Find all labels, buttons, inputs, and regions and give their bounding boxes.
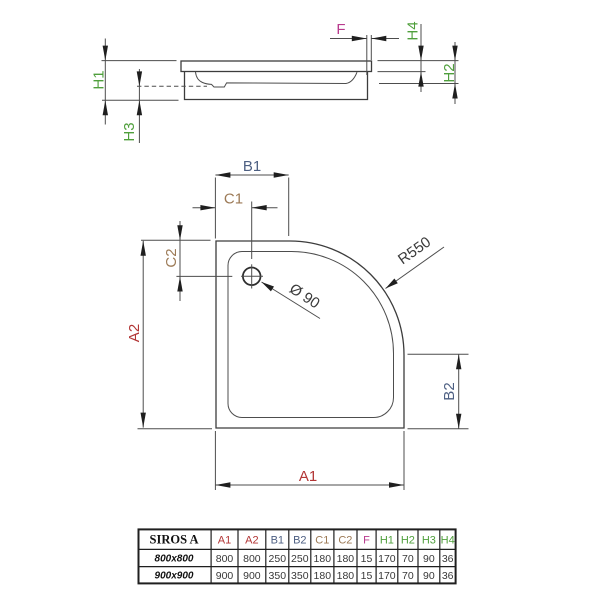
svg-text:90: 90: [423, 553, 435, 565]
svg-text:H3: H3: [121, 122, 138, 141]
svg-text:C1: C1: [224, 191, 243, 208]
svg-text:B1: B1: [243, 158, 261, 175]
svg-text:A2: A2: [126, 324, 143, 342]
svg-text:800x800: 800x800: [155, 554, 194, 565]
svg-text:180: 180: [314, 553, 332, 565]
svg-text:36: 36: [442, 570, 454, 582]
svg-text:900x900: 900x900: [155, 571, 194, 582]
svg-text:15: 15: [361, 553, 373, 565]
svg-text:H1: H1: [90, 70, 107, 89]
svg-text:900: 900: [216, 570, 234, 582]
svg-text:A1: A1: [218, 534, 231, 546]
svg-text:B1: B1: [271, 534, 284, 546]
svg-text:C1: C1: [315, 534, 329, 546]
svg-text:SIROS A: SIROS A: [150, 532, 199, 546]
svg-text:B2: B2: [441, 382, 458, 400]
svg-text:H4: H4: [404, 21, 421, 40]
svg-text:800: 800: [216, 553, 234, 565]
svg-text:A1: A1: [299, 468, 317, 485]
svg-text:170: 170: [378, 570, 396, 582]
svg-text:70: 70: [402, 570, 414, 582]
svg-text:350: 350: [269, 570, 287, 582]
svg-text:H2: H2: [441, 63, 458, 82]
svg-text:250: 250: [291, 553, 309, 565]
svg-text:H1: H1: [380, 534, 394, 546]
svg-text:B2: B2: [293, 534, 306, 546]
svg-text:90: 90: [423, 570, 435, 582]
svg-text:F: F: [336, 21, 345, 38]
svg-text:15: 15: [361, 570, 373, 582]
svg-text:H3: H3: [422, 534, 436, 546]
svg-text:H4: H4: [441, 534, 455, 546]
svg-text:250: 250: [269, 553, 287, 565]
svg-text:C2: C2: [338, 534, 352, 546]
svg-text:A2: A2: [245, 534, 258, 546]
svg-text:800: 800: [243, 553, 261, 565]
svg-text:C2: C2: [163, 248, 180, 267]
svg-text:180: 180: [337, 570, 355, 582]
svg-text:36: 36: [442, 553, 454, 565]
svg-text:170: 170: [378, 553, 396, 565]
svg-text:70: 70: [402, 553, 414, 565]
svg-text:900: 900: [243, 570, 261, 582]
svg-text:350: 350: [291, 570, 309, 582]
svg-text:F: F: [363, 534, 370, 546]
svg-text:180: 180: [337, 553, 355, 565]
svg-text:H2: H2: [401, 534, 415, 546]
svg-text:180: 180: [314, 570, 332, 582]
